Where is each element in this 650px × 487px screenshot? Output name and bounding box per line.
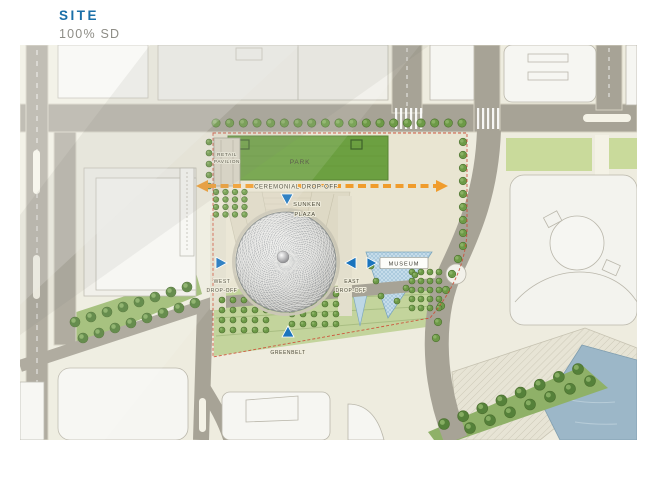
dome-structure <box>234 210 339 315</box>
greenbelt-label: GREENBELT <box>270 350 305 356</box>
west-dropoff-label-1: WEST <box>214 279 231 285</box>
park-label: PARK <box>290 159 310 166</box>
site-plan-canvas: PARK RETAIL PAVILION CEREMONIAL DROP-OFF… <box>0 0 650 487</box>
east-dropoff-label-1: EAST <box>344 279 359 285</box>
retail-pavilion-label-1: RETAIL <box>217 152 237 158</box>
museum-label: MUSEUM <box>389 262 420 268</box>
ceremonial-dropoff-label: CEREMONIAL DROP-OFF <box>254 185 338 191</box>
park-area <box>228 136 388 180</box>
west-dropoff-label-2: DROP-OFF <box>207 288 238 294</box>
east-dropoff-label-2: DROP-OFF <box>336 288 367 294</box>
retail-pavilion-label-2: PAVILION <box>214 159 240 165</box>
sunken-plaza-label-1: SUNKEN <box>293 202 321 208</box>
sunken-plaza-label-2: PLAZA <box>294 212 315 218</box>
east-lawn <box>506 138 637 171</box>
